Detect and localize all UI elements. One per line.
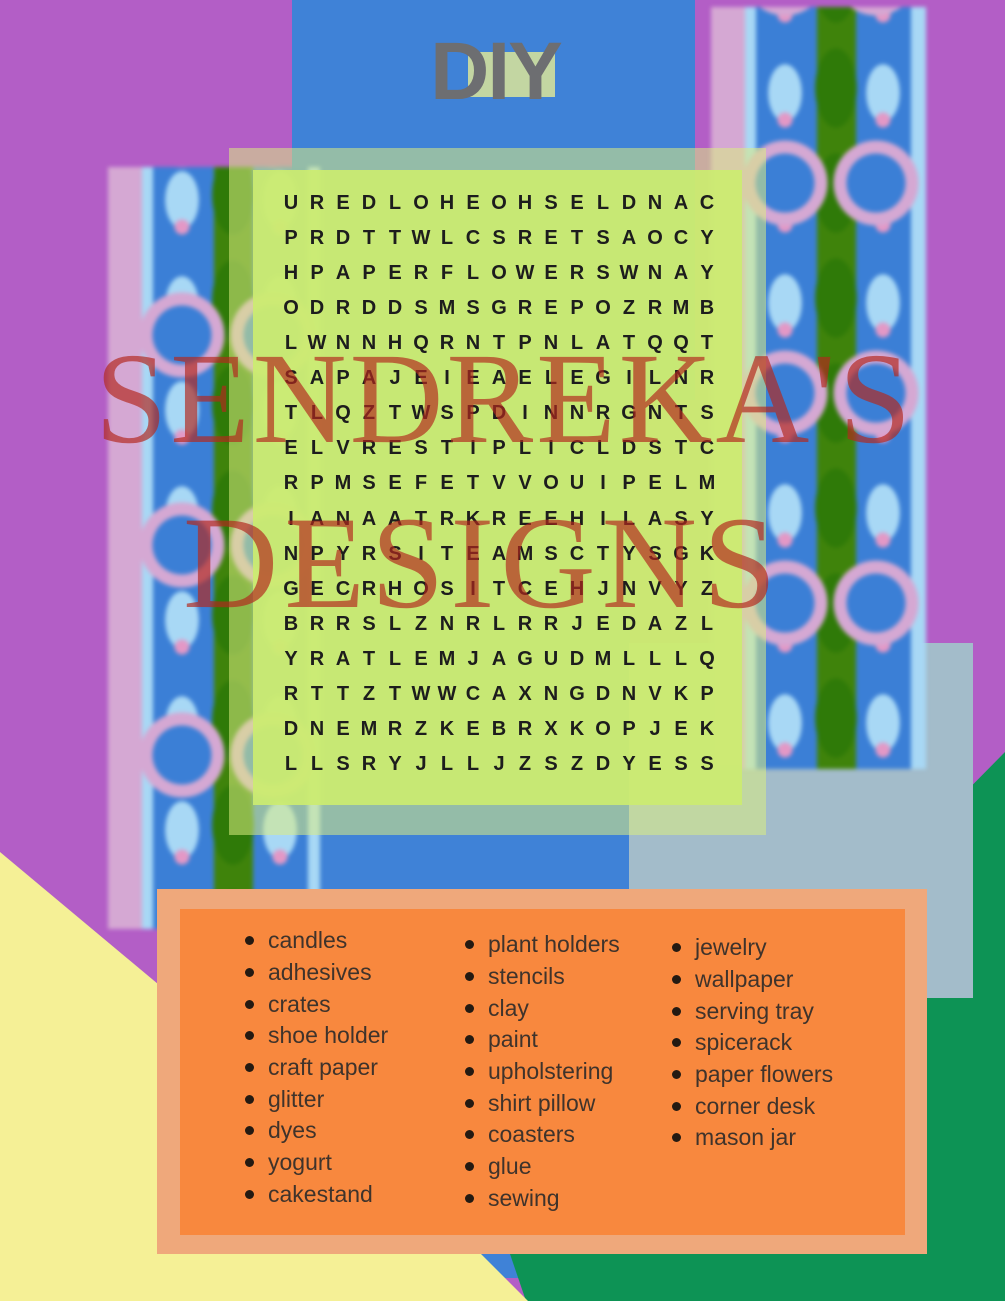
grid-letter: R	[434, 326, 460, 361]
bullet-icon	[245, 1063, 254, 1072]
grid-letter: A	[356, 361, 382, 396]
grid-letter: T	[486, 326, 512, 361]
grid-letter: S	[356, 466, 382, 501]
grid-letter: B	[694, 291, 720, 326]
grid-letter: N	[538, 677, 564, 712]
grid-letter: R	[512, 607, 538, 642]
grid-letter: I	[590, 502, 616, 537]
grid-letter: S	[538, 747, 564, 782]
grid-letter: R	[278, 466, 304, 501]
grid-letter: Z	[356, 396, 382, 431]
grid-letter: X	[538, 712, 564, 747]
grid-letter: K	[694, 537, 720, 572]
grid-letter: C	[460, 221, 486, 256]
word-list-item: adhesives	[245, 957, 388, 989]
grid-letter: Z	[668, 607, 694, 642]
grid-letter: W	[434, 677, 460, 712]
grid-letter: D	[486, 396, 512, 431]
word-label: glue	[488, 1153, 531, 1180]
grid-letter: E	[278, 431, 304, 466]
grid-letter: T	[304, 677, 330, 712]
grid-letter: L	[616, 642, 642, 677]
grid-letter: Y	[694, 221, 720, 256]
grid-letter: S	[694, 396, 720, 431]
word-list-column-3: jewelrywallpaperserving trayspicerackpap…	[672, 932, 833, 1154]
grid-letter: E	[434, 466, 460, 501]
grid-letter: E	[538, 572, 564, 607]
grid-letter: L	[460, 747, 486, 782]
word-list-item: corner desk	[672, 1090, 833, 1122]
grid-letter: R	[408, 256, 434, 291]
grid-letter: C	[564, 431, 590, 466]
grid-letter: J	[642, 712, 668, 747]
bullet-icon	[245, 1095, 254, 1104]
word-list-item: shirt pillow	[465, 1087, 620, 1119]
word-label: serving tray	[695, 998, 814, 1025]
grid-letter: H	[434, 186, 460, 221]
grid-letter: N	[434, 607, 460, 642]
grid-letter: Q	[330, 396, 356, 431]
bullet-icon	[465, 1162, 474, 1171]
grid-letter: M	[694, 466, 720, 501]
grid-letter: I	[512, 396, 538, 431]
grid-letter: A	[668, 256, 694, 291]
grid-letter: N	[538, 396, 564, 431]
grid-letter: D	[616, 431, 642, 466]
word-label: candles	[268, 927, 347, 954]
grid-letter: R	[330, 291, 356, 326]
grid-letter: C	[460, 677, 486, 712]
grid-letter: P	[278, 221, 304, 256]
word-label: mason jar	[695, 1124, 796, 1151]
grid-letter: S	[642, 431, 668, 466]
grid-letter: G	[590, 361, 616, 396]
grid-letter: T	[564, 221, 590, 256]
grid-letter: I	[460, 572, 486, 607]
word-label: glitter	[268, 1086, 324, 1113]
grid-letter: P	[616, 466, 642, 501]
grid-letter: L	[642, 642, 668, 677]
grid-letter: L	[434, 221, 460, 256]
grid-letter: E	[460, 712, 486, 747]
grid-letter: E	[538, 502, 564, 537]
grid-letter: N	[564, 396, 590, 431]
word-list-item: shoe holder	[245, 1020, 388, 1052]
grid-letter: A	[486, 361, 512, 396]
word-list-item: yogurt	[245, 1147, 388, 1179]
grid-letter: S	[642, 537, 668, 572]
grid-letter: E	[512, 361, 538, 396]
grid-letter: A	[356, 502, 382, 537]
grid-letter: A	[668, 186, 694, 221]
grid-letter: L	[434, 747, 460, 782]
grid-letter: T	[668, 396, 694, 431]
grid-letter: E	[538, 221, 564, 256]
grid-letter: R	[304, 607, 330, 642]
grid-letter: V	[486, 466, 512, 501]
grid-letter: E	[460, 537, 486, 572]
grid-letter: K	[434, 712, 460, 747]
grid-letter: Y	[668, 572, 694, 607]
grid-letter: T	[382, 396, 408, 431]
grid-letter: Q	[668, 326, 694, 361]
grid-letter: C	[668, 221, 694, 256]
word-list-item: mason jar	[672, 1122, 833, 1154]
word-list-item: clay	[465, 992, 620, 1024]
grid-letter: E	[382, 256, 408, 291]
grid-letter: R	[356, 537, 382, 572]
grid-letter: I	[278, 502, 304, 537]
grid-letter: S	[408, 431, 434, 466]
grid-letter: D	[356, 186, 382, 221]
grid-letter: O	[486, 186, 512, 221]
grid-letter: L	[694, 607, 720, 642]
grid-letter: D	[356, 291, 382, 326]
grid-letter: T	[356, 642, 382, 677]
word-label: yogurt	[268, 1149, 332, 1176]
grid-letter: A	[304, 361, 330, 396]
grid-letter: N	[278, 537, 304, 572]
grid-letter: D	[304, 291, 330, 326]
grid-letter: E	[330, 712, 356, 747]
grid-letter: Z	[694, 572, 720, 607]
grid-letter: R	[304, 642, 330, 677]
grid-letter: S	[486, 221, 512, 256]
poster-canvas: UREDLOHEOHSELDNACPRDTTWLCSRETSAOCYHPAPER…	[0, 0, 1005, 1301]
grid-letter: U	[278, 186, 304, 221]
grid-letter: D	[382, 291, 408, 326]
word-list-item: coasters	[465, 1119, 620, 1151]
grid-letter: C	[564, 537, 590, 572]
bullet-icon	[465, 1035, 474, 1044]
word-label: cakestand	[268, 1181, 373, 1208]
word-list-item: wallpaper	[672, 964, 833, 996]
grid-letter: A	[616, 221, 642, 256]
grid-letter: L	[486, 607, 512, 642]
grid-letter: S	[590, 221, 616, 256]
grid-letter: W	[304, 326, 330, 361]
grid-letter: P	[304, 466, 330, 501]
grid-letter: S	[278, 361, 304, 396]
word-list-item: paint	[465, 1024, 620, 1056]
grid-letter: D	[564, 642, 590, 677]
grid-letter: T	[486, 572, 512, 607]
grid-letter: S	[590, 256, 616, 291]
grid-letter: N	[304, 712, 330, 747]
word-list-item: candles	[245, 925, 388, 957]
grid-letter: V	[642, 677, 668, 712]
word-label: dyes	[268, 1117, 317, 1144]
grid-letter: O	[590, 291, 616, 326]
grid-letter: T	[694, 326, 720, 361]
grid-letter: K	[668, 677, 694, 712]
grid-letter: R	[278, 677, 304, 712]
grid-letter: T	[590, 537, 616, 572]
bullet-icon	[465, 1194, 474, 1203]
grid-letter: R	[538, 607, 564, 642]
grid-letter: J	[460, 642, 486, 677]
grid-letter: E	[330, 186, 356, 221]
grid-letter: T	[408, 502, 434, 537]
grid-letter: L	[304, 431, 330, 466]
grid-letter: E	[642, 747, 668, 782]
grid-letter: T	[616, 326, 642, 361]
grid-letter: J	[564, 607, 590, 642]
grid-letter: W	[512, 256, 538, 291]
grid-letter: Z	[408, 712, 434, 747]
grid-letter: L	[460, 256, 486, 291]
grid-letter: J	[382, 361, 408, 396]
grid-letter: R	[356, 572, 382, 607]
word-label: clay	[488, 995, 529, 1022]
grid-letter: Y	[694, 502, 720, 537]
grid-letter: P	[304, 537, 330, 572]
word-list-column-1: candlesadhesivescratesshoe holdercraft p…	[245, 925, 388, 1210]
grid-letter: Q	[642, 326, 668, 361]
grid-letter: F	[408, 466, 434, 501]
grid-letter: C	[694, 431, 720, 466]
grid-letter: G	[512, 642, 538, 677]
grid-letter: O	[486, 256, 512, 291]
grid-letter: L	[304, 396, 330, 431]
bullet-icon	[245, 1158, 254, 1167]
word-list-item: sewing	[465, 1183, 620, 1215]
grid-letter: D	[616, 607, 642, 642]
grid-letter: T	[356, 221, 382, 256]
word-label: shirt pillow	[488, 1090, 595, 1117]
grid-letter: T	[434, 431, 460, 466]
bullet-icon	[672, 975, 681, 984]
grid-letter: E	[460, 361, 486, 396]
bullet-icon	[245, 968, 254, 977]
grid-letter: F	[434, 256, 460, 291]
grid-letter: T	[668, 431, 694, 466]
grid-letter: T	[382, 221, 408, 256]
grid-letter: R	[356, 431, 382, 466]
word-label: sewing	[488, 1185, 560, 1212]
bullet-icon	[465, 940, 474, 949]
word-list-column-2: plant holdersstencilsclaypaintupholsteri…	[465, 929, 620, 1214]
grid-letter: R	[434, 502, 460, 537]
grid-letter: Y	[382, 747, 408, 782]
grid-letter: P	[616, 712, 642, 747]
grid-letter: T	[434, 537, 460, 572]
word-label: adhesives	[268, 959, 372, 986]
grid-letter: S	[434, 572, 460, 607]
grid-letter: I	[590, 466, 616, 501]
grid-letter: N	[642, 256, 668, 291]
bullet-icon	[245, 1126, 254, 1135]
grid-letter: L	[668, 466, 694, 501]
grid-letter: A	[642, 502, 668, 537]
word-label: paper flowers	[695, 1061, 833, 1088]
grid-letter: L	[278, 747, 304, 782]
word-label: crates	[268, 991, 331, 1018]
grid-letter: I	[538, 431, 564, 466]
grid-letter: R	[356, 747, 382, 782]
word-label: coasters	[488, 1121, 575, 1148]
grid-letter: R	[512, 221, 538, 256]
grid-letter: P	[486, 431, 512, 466]
grid-letter: S	[356, 607, 382, 642]
bullet-icon	[672, 1007, 681, 1016]
grid-letter: Z	[408, 607, 434, 642]
word-label: corner desk	[695, 1093, 815, 1120]
grid-letter: A	[382, 502, 408, 537]
word-list-item: paper flowers	[672, 1059, 833, 1091]
grid-letter: R	[642, 291, 668, 326]
grid-letter: L	[538, 361, 564, 396]
grid-letter: W	[616, 256, 642, 291]
grid-letter: E	[590, 607, 616, 642]
word-label: plant holders	[488, 931, 620, 958]
bullet-icon	[465, 1099, 474, 1108]
grid-letter: E	[538, 291, 564, 326]
bullet-icon	[672, 1102, 681, 1111]
grid-letter: E	[668, 712, 694, 747]
grid-letter: B	[486, 712, 512, 747]
grid-letter: N	[460, 326, 486, 361]
grid-letter: H	[564, 572, 590, 607]
word-list-item: stencils	[465, 961, 620, 993]
bullet-icon	[465, 1130, 474, 1139]
word-label: craft paper	[268, 1054, 378, 1081]
word-label: wallpaper	[695, 966, 793, 993]
grid-letter: A	[486, 642, 512, 677]
grid-letter: V	[512, 466, 538, 501]
grid-letter: Z	[512, 747, 538, 782]
bullet-icon	[245, 1000, 254, 1009]
grid-letter: S	[408, 291, 434, 326]
grid-letter: G	[668, 537, 694, 572]
grid-letter: H	[382, 326, 408, 361]
word-list-item: craft paper	[245, 1052, 388, 1084]
grid-letter: Z	[356, 677, 382, 712]
grid-letter: E	[408, 642, 434, 677]
grid-letter: Q	[694, 642, 720, 677]
grid-letter: J	[486, 747, 512, 782]
grid-letter: U	[538, 642, 564, 677]
grid-letter: L	[590, 431, 616, 466]
grid-letter: L	[564, 326, 590, 361]
grid-letter: T	[460, 466, 486, 501]
word-label: stencils	[488, 963, 565, 990]
grid-letter: A	[304, 502, 330, 537]
grid-letter: E	[642, 466, 668, 501]
word-list-item: serving tray	[672, 995, 833, 1027]
grid-letter: I	[616, 361, 642, 396]
word-label: jewelry	[695, 934, 767, 961]
word-list-item: glitter	[245, 1083, 388, 1115]
grid-letter: L	[304, 747, 330, 782]
grid-letter: R	[460, 607, 486, 642]
grid-letter: L	[616, 502, 642, 537]
grid-letter: V	[642, 572, 668, 607]
grid-letter: R	[564, 256, 590, 291]
grid-letter: L	[382, 642, 408, 677]
word-list-item: crates	[245, 988, 388, 1020]
grid-letter: E	[538, 256, 564, 291]
grid-letter: D	[616, 186, 642, 221]
grid-letter: I	[460, 431, 486, 466]
grid-letter: N	[668, 361, 694, 396]
grid-letter: J	[590, 572, 616, 607]
grid-letter: I	[434, 361, 460, 396]
grid-letter: R	[304, 221, 330, 256]
grid-letter: H	[512, 186, 538, 221]
grid-letter: E	[304, 572, 330, 607]
grid-letter: P	[460, 396, 486, 431]
grid-letter: L	[668, 642, 694, 677]
grid-letter: S	[434, 396, 460, 431]
grid-letter: P	[356, 256, 382, 291]
grid-letter: G	[616, 396, 642, 431]
grid-letter: Y	[278, 642, 304, 677]
bullet-icon	[245, 936, 254, 945]
grid-letter: O	[590, 712, 616, 747]
grid-letter: E	[408, 361, 434, 396]
grid-letter: O	[642, 221, 668, 256]
grid-letter: C	[512, 572, 538, 607]
grid-letter: P	[694, 677, 720, 712]
grid-letter: A	[330, 256, 356, 291]
grid-letter: Y	[616, 747, 642, 782]
grid-letter: E	[382, 466, 408, 501]
grid-letter: P	[330, 361, 356, 396]
grid-letter: M	[356, 712, 382, 747]
grid-letter: I	[408, 537, 434, 572]
grid-letter: H	[278, 256, 304, 291]
grid-letter: K	[564, 712, 590, 747]
word-label: spicerack	[695, 1029, 792, 1056]
grid-letter: M	[590, 642, 616, 677]
grid-letter: R	[590, 396, 616, 431]
grid-letter: W	[408, 221, 434, 256]
grid-letter: T	[278, 396, 304, 431]
grid-letter: A	[330, 642, 356, 677]
grid-letter: O	[408, 186, 434, 221]
bullet-icon	[465, 972, 474, 981]
word-search-grid: UREDLOHEOHSELDNACPRDTTWLCSRETSAOCYHPAPER…	[278, 186, 720, 782]
grid-letter: M	[434, 291, 460, 326]
grid-letter: R	[694, 361, 720, 396]
grid-letter: A	[642, 607, 668, 642]
grid-letter: R	[486, 502, 512, 537]
grid-letter: N	[616, 572, 642, 607]
grid-letter: Q	[408, 326, 434, 361]
grid-letter: D	[330, 221, 356, 256]
grid-letter: S	[330, 747, 356, 782]
grid-letter: E	[512, 502, 538, 537]
grid-letter: O	[278, 291, 304, 326]
grid-letter: E	[564, 361, 590, 396]
grid-letter: N	[330, 326, 356, 361]
word-label: upholstering	[488, 1058, 613, 1085]
word-list-item: upholstering	[465, 1056, 620, 1088]
grid-letter: R	[330, 607, 356, 642]
grid-letter: S	[538, 186, 564, 221]
grid-letter: K	[694, 712, 720, 747]
grid-letter: D	[278, 712, 304, 747]
grid-letter: N	[356, 326, 382, 361]
grid-letter: Z	[564, 747, 590, 782]
grid-letter: P	[564, 291, 590, 326]
grid-letter: M	[668, 291, 694, 326]
grid-letter: Y	[330, 537, 356, 572]
word-label: shoe holder	[268, 1022, 388, 1049]
grid-letter: A	[590, 326, 616, 361]
grid-letter: S	[668, 747, 694, 782]
